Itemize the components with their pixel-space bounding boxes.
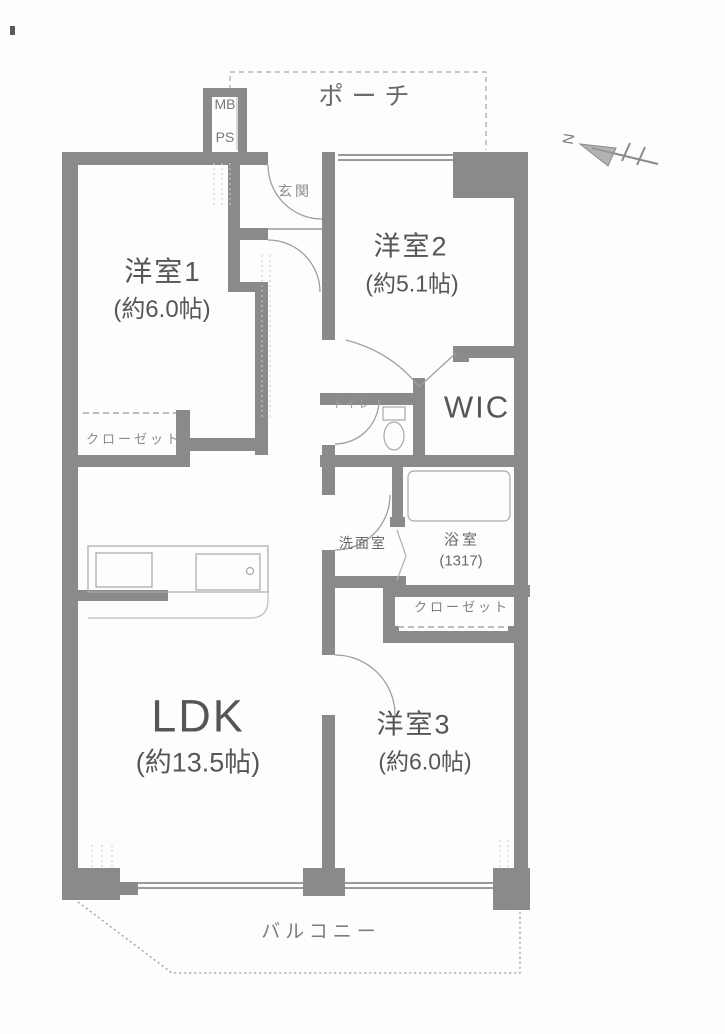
walls-group — [62, 88, 530, 910]
bathtub — [408, 471, 510, 521]
label-toilet: トイレ — [333, 400, 372, 411]
label-room3: 洋室3 — [376, 712, 451, 739]
label-room1-size: (約6.0帖) — [113, 298, 210, 322]
label-bath-size: (1317) — [439, 554, 482, 569]
label-ldk: LDK — [151, 694, 245, 739]
floorplan-drawing — [0, 0, 725, 1034]
scan-speck — [10, 26, 15, 35]
north-label: N — [561, 132, 578, 145]
label-closet-right: クローゼット — [414, 601, 510, 614]
label-porch: ポーチ — [318, 85, 417, 110]
label-room1: 洋室1 — [124, 258, 202, 286]
label-room2: 洋室2 — [373, 234, 448, 261]
label-ps: PS — [216, 130, 235, 144]
label-washroom: 洗面室 — [339, 536, 387, 550]
label-room3-size: (約6.0帖) — [378, 751, 471, 774]
label-bath: 浴室 — [444, 533, 480, 548]
label-mb: MB — [215, 97, 236, 111]
label-entrance: 玄関 — [278, 184, 312, 198]
label-wic: WIC — [444, 392, 510, 423]
label-ldk-size: (約13.5帖) — [136, 750, 261, 777]
floorplan: ポーチ MB PS 玄関 洋室1 (約6.0帖) 洋室2 (約5.1帖) WIC… — [0, 0, 725, 1034]
label-balcony: バルコニー — [261, 923, 381, 942]
toilet-fixture — [383, 407, 405, 420]
label-room2-size: (約5.1帖) — [365, 273, 458, 296]
north-arrow-icon — [580, 143, 658, 166]
label-closet-left: クローゼット — [86, 433, 182, 446]
